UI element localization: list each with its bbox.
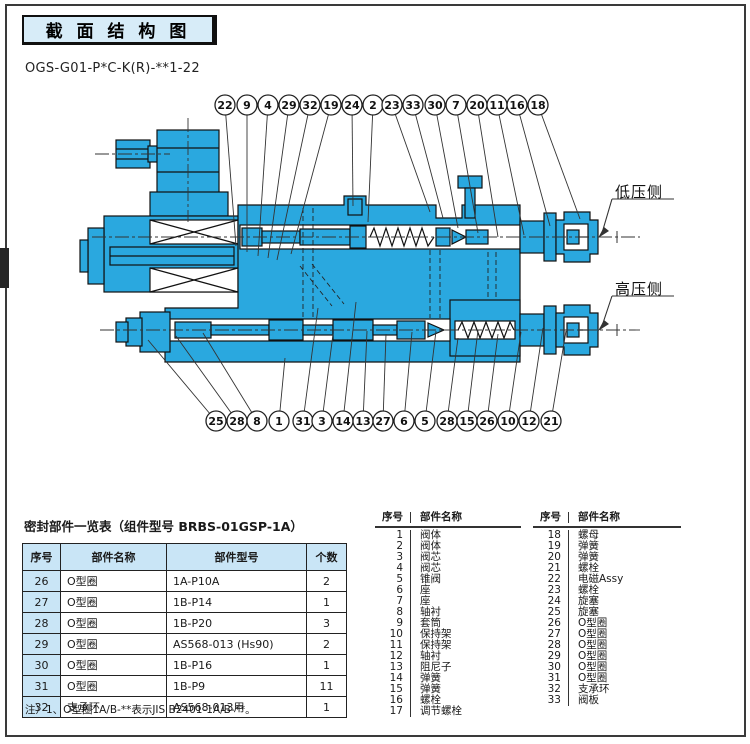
part-number: 5 bbox=[375, 574, 410, 585]
parts-list-header: 序号部件名称 bbox=[375, 512, 521, 523]
seal-table-cell: 3 bbox=[307, 613, 347, 634]
seal-table-row: 26O型圈1A-P10A2 bbox=[23, 571, 347, 592]
svg-text:27: 27 bbox=[375, 415, 390, 428]
part-number: 3 bbox=[375, 552, 410, 563]
svg-text:12: 12 bbox=[521, 415, 536, 428]
parts-list-header-rule bbox=[533, 526, 681, 528]
svg-text:1: 1 bbox=[275, 415, 283, 428]
connector-base bbox=[150, 192, 228, 216]
seal-table-cell: 1 bbox=[307, 592, 347, 613]
svg-text:19: 19 bbox=[323, 99, 338, 112]
seal-table-row: 28O型圈1B-P203 bbox=[23, 613, 347, 634]
parts-list-col-seq: 序号 bbox=[375, 512, 410, 523]
seal-table-cell: 30 bbox=[23, 655, 61, 676]
seal-table-cell: 1B-P9 bbox=[167, 676, 307, 697]
seal-table-cell: AS568-013 (Hs90) bbox=[167, 634, 307, 655]
svg-text:10: 10 bbox=[500, 415, 516, 428]
callout-1: 1 bbox=[269, 411, 289, 431]
seal-table-row: 31O型圈1B-P911 bbox=[23, 676, 347, 697]
svg-text:14: 14 bbox=[335, 415, 351, 428]
callout-27: 27 bbox=[373, 411, 393, 431]
svg-text:3: 3 bbox=[318, 415, 326, 428]
svg-text:13: 13 bbox=[355, 415, 370, 428]
callout-24: 24 bbox=[342, 95, 362, 115]
seal-table-cell: O型圈 bbox=[61, 634, 167, 655]
callout-25: 25 bbox=[206, 411, 226, 431]
callout-18: 18 bbox=[528, 95, 548, 115]
callout-6: 6 bbox=[394, 411, 414, 431]
svg-text:29: 29 bbox=[281, 99, 296, 112]
parts-list-header: 序号部件名称 bbox=[533, 512, 681, 523]
parts-list-col-name: 部件名称 bbox=[410, 512, 521, 523]
callout-23: 23 bbox=[382, 95, 402, 115]
seal-col-header: 序号 bbox=[23, 544, 61, 571]
callout-14: 14 bbox=[333, 411, 353, 431]
svg-text:16: 16 bbox=[509, 99, 525, 112]
svg-text:30: 30 bbox=[427, 99, 443, 112]
seal-table-cell: 29 bbox=[23, 634, 61, 655]
seal-table-cell: 26 bbox=[23, 571, 61, 592]
svg-text:23: 23 bbox=[384, 99, 399, 112]
callout-2: 2 bbox=[363, 95, 383, 115]
part-number: 1 bbox=[375, 530, 410, 541]
svg-text:18: 18 bbox=[530, 99, 545, 112]
part-name: 阀板 bbox=[568, 695, 681, 706]
top-plug bbox=[348, 199, 362, 215]
seal-parts-table: 序号部件名称部件型号个数 26O型圈1A-P10A227O型圈1B-P14128… bbox=[22, 543, 347, 718]
callout-33: 33 bbox=[403, 95, 423, 115]
callout-28: 28 bbox=[227, 411, 247, 431]
parts-list-18-33: 序号部件名称18螺母19弹簧20弹簧21螺栓22电磁Assy23螺栓24旋塞25… bbox=[533, 512, 681, 706]
connector-body bbox=[157, 130, 219, 194]
part-number: 7 bbox=[375, 596, 410, 607]
top-bolt-shank bbox=[465, 188, 475, 218]
callout-30: 30 bbox=[425, 95, 445, 115]
seal-table-row: 29O型圈AS568-013 (Hs90)2 bbox=[23, 634, 347, 655]
seal-col-header: 部件名称 bbox=[61, 544, 167, 571]
svg-text:31: 31 bbox=[295, 415, 310, 428]
seal-table-cell: 2 bbox=[307, 571, 347, 592]
seal-table-cell: 2 bbox=[307, 634, 347, 655]
callout-4: 4 bbox=[258, 95, 278, 115]
svg-text:7: 7 bbox=[452, 99, 460, 112]
callout-7: 7 bbox=[446, 95, 466, 115]
callout-19: 19 bbox=[321, 95, 341, 115]
hp-arrowhead bbox=[598, 320, 609, 331]
seal-table-cell: 31 bbox=[23, 676, 61, 697]
svg-text:24: 24 bbox=[344, 99, 360, 112]
page: 截 面 结 构 图 OGS-G01-P*C-K(R)-**1-22 bbox=[0, 0, 750, 744]
svg-text:28: 28 bbox=[439, 415, 454, 428]
seal-table-cell: O型圈 bbox=[61, 571, 167, 592]
part-number: 4 bbox=[375, 563, 410, 574]
seal-table-cell: 1A-P10A bbox=[167, 571, 307, 592]
parts-list-row: 17调节螺栓 bbox=[375, 706, 521, 717]
callout-10: 10 bbox=[498, 411, 518, 431]
svg-text:32: 32 bbox=[302, 99, 317, 112]
lp-arrowhead bbox=[598, 227, 609, 238]
seal-table-cell: 11 bbox=[307, 676, 347, 697]
seal-table-cell: 1B-P14 bbox=[167, 592, 307, 613]
svg-text:4: 4 bbox=[264, 99, 272, 112]
callout-29: 29 bbox=[279, 95, 299, 115]
svg-text:6: 6 bbox=[400, 415, 408, 428]
seal-table-cell: O型圈 bbox=[61, 676, 167, 697]
seal-col-header: 部件型号 bbox=[167, 544, 307, 571]
svg-text:25: 25 bbox=[208, 415, 223, 428]
seal-table-row: 27O型圈1B-P141 bbox=[23, 592, 347, 613]
parts-list-row: 33阀板 bbox=[533, 695, 681, 706]
svg-text:28: 28 bbox=[229, 415, 244, 428]
parts-list-1-17: 序号部件名称1阀体2阀体3阀芯4阀芯5锥阀6座7座8轴衬9套筒10保持架11保持… bbox=[375, 512, 521, 717]
callout-22: 22 bbox=[215, 95, 235, 115]
callout-21: 21 bbox=[541, 411, 561, 431]
callout-13: 13 bbox=[353, 411, 373, 431]
callout-16: 16 bbox=[507, 95, 527, 115]
seal-table-note: 注）1、O型圈1A/B-**表示JIS B2401-1A/B-**。 bbox=[25, 702, 256, 717]
seal-table-cell: O型圈 bbox=[61, 592, 167, 613]
svg-text:26: 26 bbox=[479, 415, 495, 428]
svg-text:21: 21 bbox=[543, 415, 558, 428]
part-number: 8 bbox=[375, 607, 410, 618]
svg-text:20: 20 bbox=[469, 99, 485, 112]
svg-text:33: 33 bbox=[405, 99, 420, 112]
seal-table-cell: 1B-P16 bbox=[167, 655, 307, 676]
seal-table-cell: 27 bbox=[23, 592, 61, 613]
seal-table-cell: 28 bbox=[23, 613, 61, 634]
seal-table-header-row: 序号部件名称部件型号个数 bbox=[23, 544, 347, 571]
svg-text:2: 2 bbox=[369, 99, 377, 112]
callout-28: 28 bbox=[437, 411, 457, 431]
callout-3: 3 bbox=[312, 411, 332, 431]
svg-text:15: 15 bbox=[459, 415, 474, 428]
seal-table-row: 30O型圈1B-P161 bbox=[23, 655, 347, 676]
seal-table-cell: 1 bbox=[307, 655, 347, 676]
seal-col-header: 个数 bbox=[307, 544, 347, 571]
seal-table-cell: O型圈 bbox=[61, 613, 167, 634]
part-number: 6 bbox=[375, 585, 410, 596]
valve-drawing bbox=[80, 130, 598, 362]
svg-text:5: 5 bbox=[421, 415, 429, 428]
callout-26: 26 bbox=[477, 411, 497, 431]
callout-31: 31 bbox=[293, 411, 313, 431]
parts-list-header-rule bbox=[375, 526, 521, 528]
svg-text:11: 11 bbox=[489, 99, 504, 112]
low-pressure-side-label: 低压侧 bbox=[615, 181, 663, 202]
seal-table-cell: O型圈 bbox=[61, 655, 167, 676]
pressure-label-leaders bbox=[598, 199, 674, 331]
callout-32: 32 bbox=[300, 95, 320, 115]
high-pressure-side-label: 高压侧 bbox=[615, 278, 663, 299]
part-number: 33 bbox=[533, 695, 568, 706]
part-number: 17 bbox=[375, 706, 410, 717]
callout-9: 9 bbox=[237, 95, 257, 115]
svg-text:8: 8 bbox=[253, 415, 261, 428]
callout-8: 8 bbox=[247, 411, 267, 431]
callout-5: 5 bbox=[415, 411, 435, 431]
part-name: 调节螺栓 bbox=[410, 706, 521, 717]
parts-list-col-name: 部件名称 bbox=[568, 512, 681, 523]
callout-20: 20 bbox=[467, 95, 487, 115]
callout-12: 12 bbox=[519, 411, 539, 431]
left-plug bbox=[140, 312, 170, 352]
seal-table-title: 密封部件一览表（组件型号 BRBS-01GSP-1A） bbox=[24, 516, 303, 535]
svg-text:9: 9 bbox=[243, 99, 251, 112]
part-number: 2 bbox=[375, 541, 410, 552]
seal-table-cell: 1 bbox=[307, 697, 347, 718]
parts-list-col-seq: 序号 bbox=[533, 512, 568, 523]
callout-11: 11 bbox=[487, 95, 507, 115]
seal-table-cell: 1B-P20 bbox=[167, 613, 307, 634]
callout-15: 15 bbox=[457, 411, 477, 431]
svg-text:22: 22 bbox=[217, 99, 232, 112]
